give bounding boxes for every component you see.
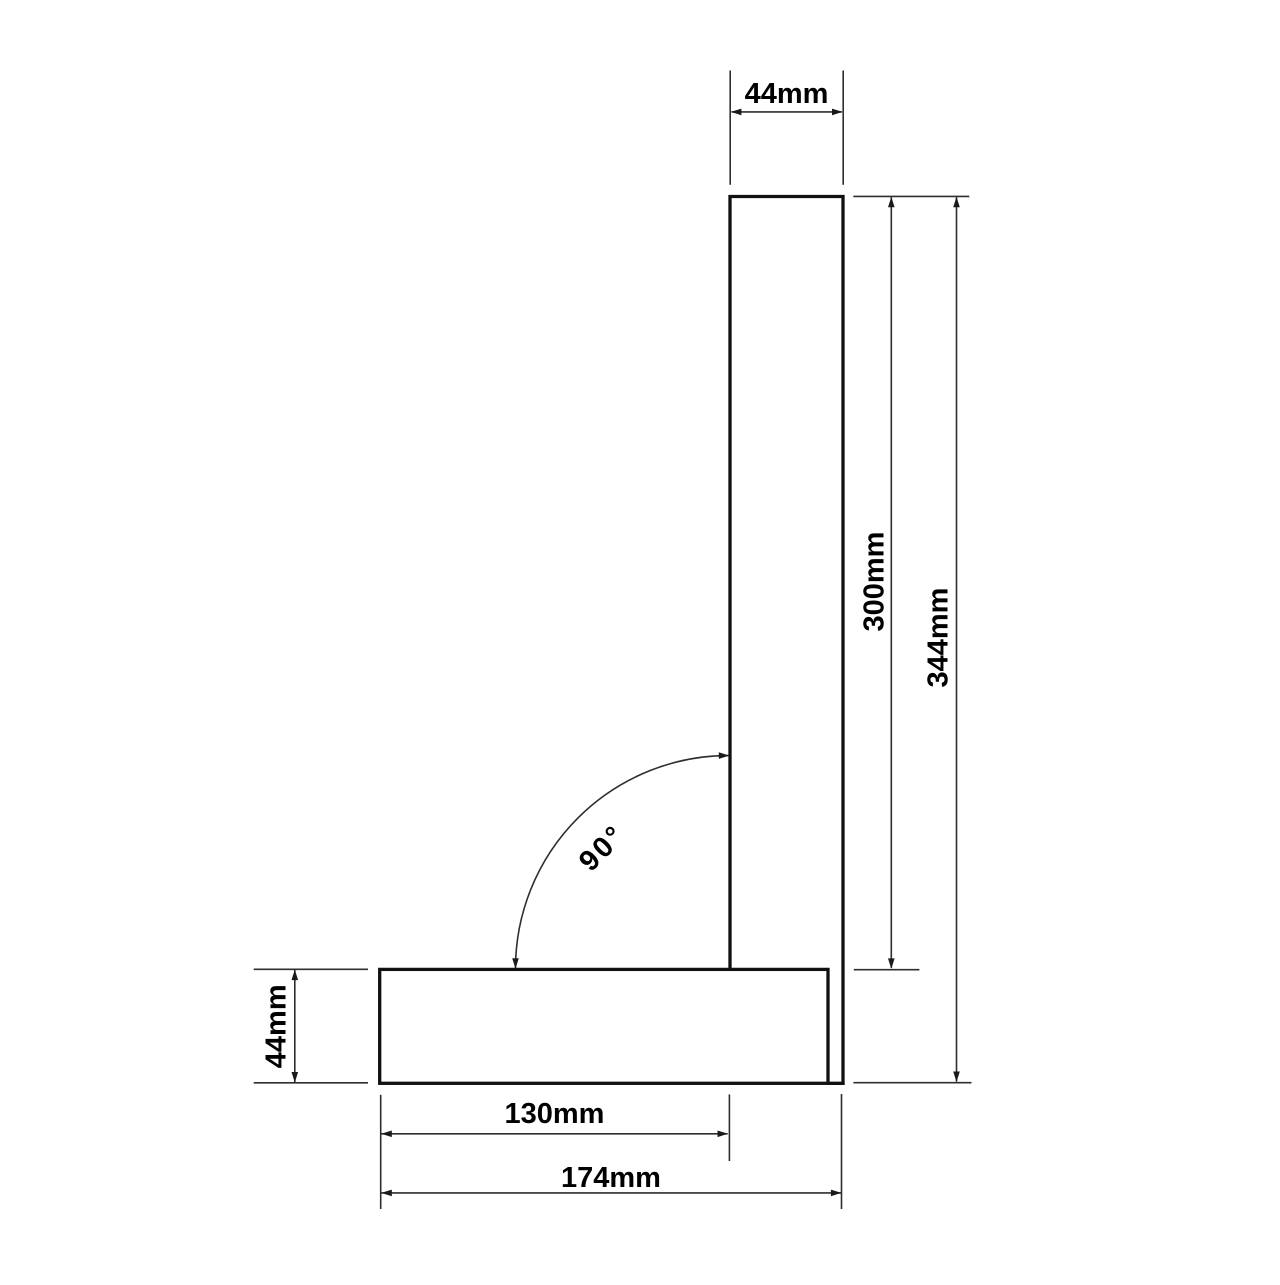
svg-text:44mm: 44mm (745, 78, 829, 110)
svg-text:44mm: 44mm (261, 984, 293, 1068)
svg-text:344mm: 344mm (923, 588, 955, 688)
svg-text:300mm: 300mm (859, 532, 891, 632)
svg-text:130mm: 130mm (505, 1098, 605, 1130)
svg-text:174mm: 174mm (561, 1162, 661, 1194)
